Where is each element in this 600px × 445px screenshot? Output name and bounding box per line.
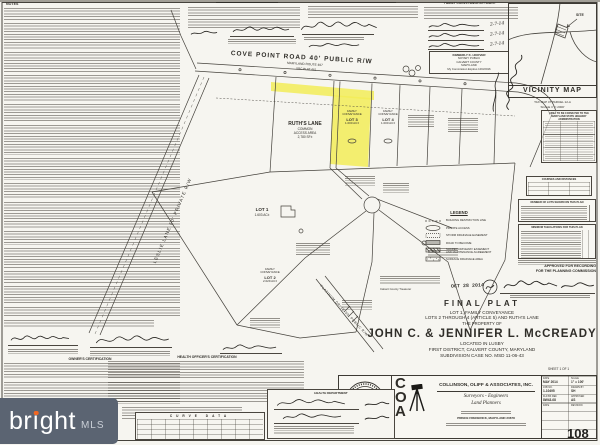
illegible-note: [4, 104, 180, 122]
handwritten-date: [190, 29, 218, 37]
certification-heading: [216, 2, 278, 5]
info-value: 8W43-08: [543, 398, 556, 402]
illegible-note: [4, 158, 180, 180]
table-content: [545, 123, 593, 159]
table-grid: [589, 205, 596, 222]
illegible-note: [4, 125, 180, 155]
illegible-caption: [274, 426, 354, 434]
signature-line: [500, 293, 595, 294]
parcel-label: [250, 318, 280, 328]
firm-tagline: Land Planners: [433, 401, 539, 406]
plat-title-area: FINAL PLAT LOT 1, FAMILY CONVEYANCE LOTS…: [352, 299, 600, 358]
table-grid: [137, 419, 263, 439]
number-of-lots-table: NUMBER OF LOTS SHOWN ON THIS PLAN: [518, 199, 596, 222]
table-grid: [528, 182, 590, 195]
illegible-paragraph: [424, 7, 518, 19]
signature-line: [230, 36, 294, 37]
info-label: DATE: [543, 404, 549, 407]
firm-name: COLLINSON, OLIFF & ASSOCIATES, INC.: [433, 383, 539, 388]
firm-address: [461, 411, 511, 414]
firm-cell: C O A COLLINSON, OLIFF & ASSOCIATES, INC…: [391, 376, 542, 438]
plat-subtitle: THE PROPERTY OF: [352, 321, 600, 326]
info-value: 1-10495: [543, 389, 555, 393]
illegible-note: [4, 52, 180, 72]
lot4-label: FAMILY CONVEYANCE LOT 4 1.000 AC±: [372, 110, 404, 126]
legend-item: SURFACE DRAINAGE AREA: [446, 258, 494, 261]
info-value: MAY 2014: [543, 380, 558, 384]
signature-caption: [228, 39, 296, 44]
handwritten-date: [364, 414, 390, 422]
family-affidavit-title: FAMILY CONVEYANCE AFFIDAVIT: [424, 1, 516, 5]
info-value: SH: [571, 389, 575, 393]
parcel-label: [448, 118, 478, 132]
illegible-paragraph: [108, 361, 304, 379]
health-signature: [276, 398, 346, 408]
illegible-note: [4, 75, 180, 101]
signature-line: [428, 40, 484, 41]
engineer-signature: [308, 41, 360, 50]
signature-line: [274, 423, 359, 424]
signature-line: [8, 345, 78, 346]
legend-item: STORM DRAINAGE EASEMENT: [446, 234, 494, 237]
legend-title: LEGEND: [424, 210, 494, 215]
info-label: REVISION: [571, 404, 582, 407]
signature-line: [90, 347, 172, 348]
illegible-note: [4, 23, 180, 49]
legend-item: ROAD TO BECOME: [446, 242, 494, 245]
lot3-label: FAMILY CONVEYANCE LOT 3 1.000 AC±: [336, 110, 368, 126]
rear-boundary: [152, 163, 515, 192]
illegible-note: [4, 307, 180, 317]
info-value: 1" = 100': [571, 380, 584, 384]
notes-title: NOTES: [6, 2, 18, 6]
owner-signature: [10, 333, 70, 344]
firm-rule: [437, 391, 535, 392]
vicinity-tax-map: TAX MAP 47 PARCEL 12-A: [508, 100, 597, 104]
illegible-note: [4, 8, 180, 20]
scan-edge-top: [0, 0, 600, 2]
treasurer-date-stamp: OCT 28 2014: [451, 282, 484, 289]
signature-line: [428, 30, 484, 31]
table-content: [521, 206, 587, 222]
sheet-number: SHEET 1 OF 1: [548, 367, 569, 371]
legend-symbols: [424, 218, 444, 264]
bright-mls-watermark: brıght MLS: [0, 398, 118, 444]
courses-distances-table: COURSES AND DISTANCES: [526, 176, 592, 196]
signature-line: [274, 409, 359, 410]
legend-item: PRIVATE ACCESS: [446, 227, 494, 230]
illegible-paragraph: [308, 6, 418, 18]
bright-mls-logo: brıght: [9, 407, 76, 436]
vicinity-scale: SCALE 1" = 2000': [508, 105, 597, 109]
approval-line2: FOR THE PLANNING COMMISSION: [500, 269, 596, 273]
ruths-lane-culdesac: [330, 168, 380, 213]
illegible-paragraph: [188, 7, 300, 17]
location-line: LOCATED IN LUSBY: [352, 341, 600, 346]
owner-signature: [95, 334, 170, 346]
firm-phone: [446, 423, 526, 426]
parcel-label: [383, 183, 409, 193]
plat-subtitle: LOTS 2 THROUGH 4 (ARTICLE 5) AND RUTH'S …: [352, 315, 600, 320]
plat-book-stamp: 108: [567, 426, 589, 441]
vicinity-site-label: SITE: [576, 13, 584, 17]
health-certification-title: HEALTH OFFICER'S CERTIFICATION: [147, 355, 267, 359]
treasurer-label: Calvert County Treasurer: [380, 287, 411, 291]
illegible-note: [4, 286, 180, 304]
affiant-signature: [428, 32, 480, 40]
illegible-note: [4, 231, 180, 245]
table-grid: [582, 230, 594, 259]
handwritten-date: [364, 400, 390, 408]
parcel-label: [345, 176, 375, 186]
signature-caption: [8, 349, 78, 354]
owner-signature: [222, 343, 277, 353]
location-line: SUBDIVISION CASE NO. MSD 11-06-43: [352, 353, 600, 358]
info-value: AS: [571, 398, 575, 402]
firm-city: PRINCE FREDERICK, MARYLAND 20678: [433, 416, 539, 420]
final-plat-title: FINAL PLAT: [352, 299, 600, 308]
treasurer-text: [380, 276, 440, 285]
parcel-label: [408, 115, 434, 127]
commission-signature: [503, 279, 558, 291]
illegible-note: [4, 271, 180, 283]
illegible-note: [4, 202, 180, 228]
health-department-title: HEALTH DEPARTMENT: [268, 391, 394, 395]
bright-mls-suffix: MLS: [81, 420, 105, 431]
illegible-note: [4, 183, 180, 199]
sha-area-table: AREA TO BE CONVEYED TO THE MARYLAND STAT…: [541, 110, 597, 163]
health-signature: [282, 412, 342, 422]
signature-line: [428, 49, 484, 50]
treasurer-initials: [482, 279, 498, 295]
signature-line: [220, 353, 282, 354]
parcel-label: [296, 243, 330, 255]
lot1-label: LOT 1 1.603 AC±: [246, 207, 278, 217]
curve-data-table: CURVE DATA: [135, 412, 265, 440]
legend-item: BUILDING RESTRICTION LINE: [446, 219, 494, 222]
approval-line1: APPROVED FOR RECORDING: [500, 264, 596, 268]
signature-line: [302, 34, 374, 35]
commission-signature: [560, 281, 595, 291]
illegible-note: [4, 320, 154, 328]
plat-sheet: NOTES OWNER'S CERTIFICATION FAMILY CONVE…: [0, 0, 600, 445]
affiant-signature: [428, 22, 480, 30]
health-department-box: HEALTH DEPARTMENT: [267, 389, 395, 439]
vicinity-divider: [508, 85, 597, 86]
surveyor-signature: [232, 25, 290, 35]
bright-i-dot-icon: ı: [32, 407, 39, 435]
location-line: FIRST DISTRICT, CALVERT COUNTY, MARYLAND: [352, 347, 600, 352]
table-content: [521, 231, 581, 259]
engineer-signature: [300, 20, 378, 33]
legend-item: SHARED DRIVEWAY EASEMENT AND MAINTENANCE…: [446, 248, 494, 255]
certification-heading: [330, 2, 396, 5]
vicinity-map-title: VICINITY MAP: [508, 87, 597, 94]
transit-tripod-icon: [405, 384, 429, 412]
firm-tagline: Surveyors - Engineers: [433, 394, 539, 399]
tree-symbols: [403, 66, 421, 77]
house-footprint: [281, 206, 295, 217]
lot2-label: FAMILY CONVEYANCE LOT 2 2.029 AC±: [252, 268, 288, 284]
ruths-lane-label: RUTH'S LANE COMMON ACCESS AREA 2,780 SF±: [280, 121, 330, 139]
minimum-tabulations-table: MINIMUM TABULATIONS FOR THIS PLAN: [518, 224, 596, 259]
owner-name: JOHN C. & JENNIFER L. McCREADY: [352, 328, 600, 340]
plat-subtitle: LOT 1, FAMILY CONVEYANCE: [352, 310, 600, 315]
legend: LEGEND BUILDING RESTRICTION LINE PRIVATE…: [424, 210, 494, 264]
